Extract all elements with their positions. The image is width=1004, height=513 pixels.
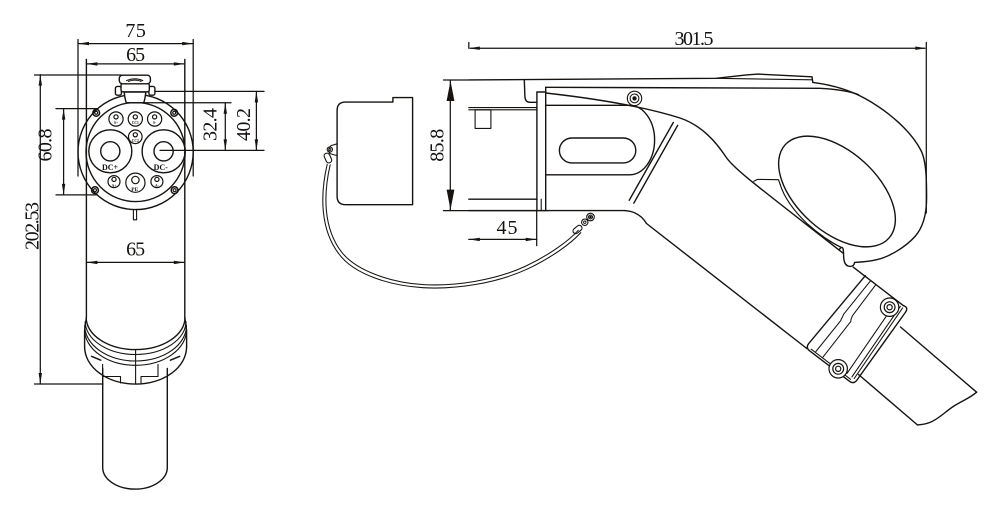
svg-text:65: 65 (126, 44, 145, 66)
svg-text:202.53: 202.53 (22, 202, 44, 250)
svg-text:75: 75 (125, 20, 146, 42)
svg-text:PE: PE (131, 187, 138, 193)
svg-text:32.4: 32.4 (200, 108, 222, 141)
svg-text:85.8: 85.8 (427, 129, 449, 162)
svg-text:S-: S- (153, 121, 157, 125)
svg-text:DC+: DC+ (102, 163, 119, 172)
svg-text:45: 45 (497, 217, 518, 239)
svg-text:DC-: DC- (154, 163, 169, 172)
svg-text:301.5: 301.5 (675, 28, 714, 50)
svg-text:40.2: 40.2 (233, 108, 255, 141)
svg-text:A+: A+ (112, 184, 117, 188)
svg-text:60.8: 60.8 (35, 129, 57, 162)
svg-text:65: 65 (126, 239, 145, 261)
svg-text:CC2: CC2 (132, 139, 139, 143)
svg-text:S+: S+ (114, 121, 118, 125)
svg-text:CC1: CC1 (132, 121, 139, 125)
